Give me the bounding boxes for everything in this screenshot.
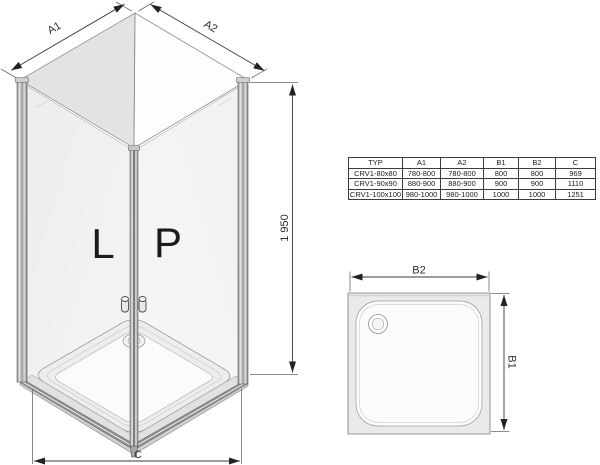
table-cell: 1000	[484, 189, 519, 200]
table-cell: 900	[484, 179, 519, 190]
dimension-b1-label: B1	[506, 355, 518, 368]
table-row: CRV1-90x90 880-900 880-900 900 900 1110	[349, 179, 596, 190]
table-cell: 980-1000	[403, 189, 441, 200]
header-a2: A2	[441, 158, 484, 169]
table-cell: 969	[556, 168, 596, 179]
table-cell: CRV1-90x90	[349, 179, 403, 190]
corner-shower-isometric-drawing: L P A1 A2 1 950 C	[0, 0, 310, 465]
header-b1: B1	[484, 158, 519, 169]
header-a1: A1	[403, 158, 441, 169]
dimension-a2-label: A2	[202, 18, 220, 35]
table-cell: CRV1-100x100	[349, 189, 403, 200]
right-door-letter: P	[154, 219, 182, 266]
header-b2: B2	[519, 158, 556, 169]
shower-tray-top-view: B2 B1	[330, 255, 600, 465]
tray-plan	[348, 293, 490, 434]
door-handle-right	[139, 297, 146, 313]
wall-profile-left	[16, 78, 29, 383]
left-door-letter: L	[91, 220, 114, 267]
table-row: CRV1-80x80 780-800 780-800 800 800 969	[349, 168, 596, 179]
technical-drawing-page: L P A1 A2 1 950 C	[0, 0, 600, 465]
table-cell: 980-1000	[441, 189, 484, 200]
table-cell: 1000	[519, 189, 556, 200]
table-cell: 780-800	[403, 168, 441, 179]
table-cell: 900	[519, 179, 556, 190]
table-cell: 1110	[556, 179, 596, 190]
wall-profile-right	[237, 78, 250, 385]
table-cell: 780-800	[441, 168, 484, 179]
header-typ: TYP	[349, 158, 403, 169]
table-cell: 880-900	[403, 179, 441, 190]
header-c: C	[556, 158, 596, 169]
center-door-profiles	[129, 146, 140, 447]
table-cell: 800	[519, 168, 556, 179]
table-cell: 880-900	[441, 179, 484, 190]
dimension-height-label: 1 950	[279, 214, 291, 242]
dimension-b2-label: B2	[412, 265, 425, 277]
table-cell: 800	[484, 168, 519, 179]
table-cell: CRV1-80x80	[349, 168, 403, 179]
dimension-a1-label: A1	[46, 20, 64, 37]
door-handle-left	[122, 297, 129, 313]
table-row: CRV1-100x100 980-1000 980-1000 1000 1000…	[349, 189, 596, 200]
dimensions-table: TYP A1 A2 B1 B2 C CRV1-80x80 780-800 780…	[348, 157, 596, 200]
table-cell: 1251	[556, 189, 596, 200]
table-header-row: TYP A1 A2 B1 B2 C	[349, 158, 596, 169]
dimension-c-label: C	[134, 449, 142, 461]
